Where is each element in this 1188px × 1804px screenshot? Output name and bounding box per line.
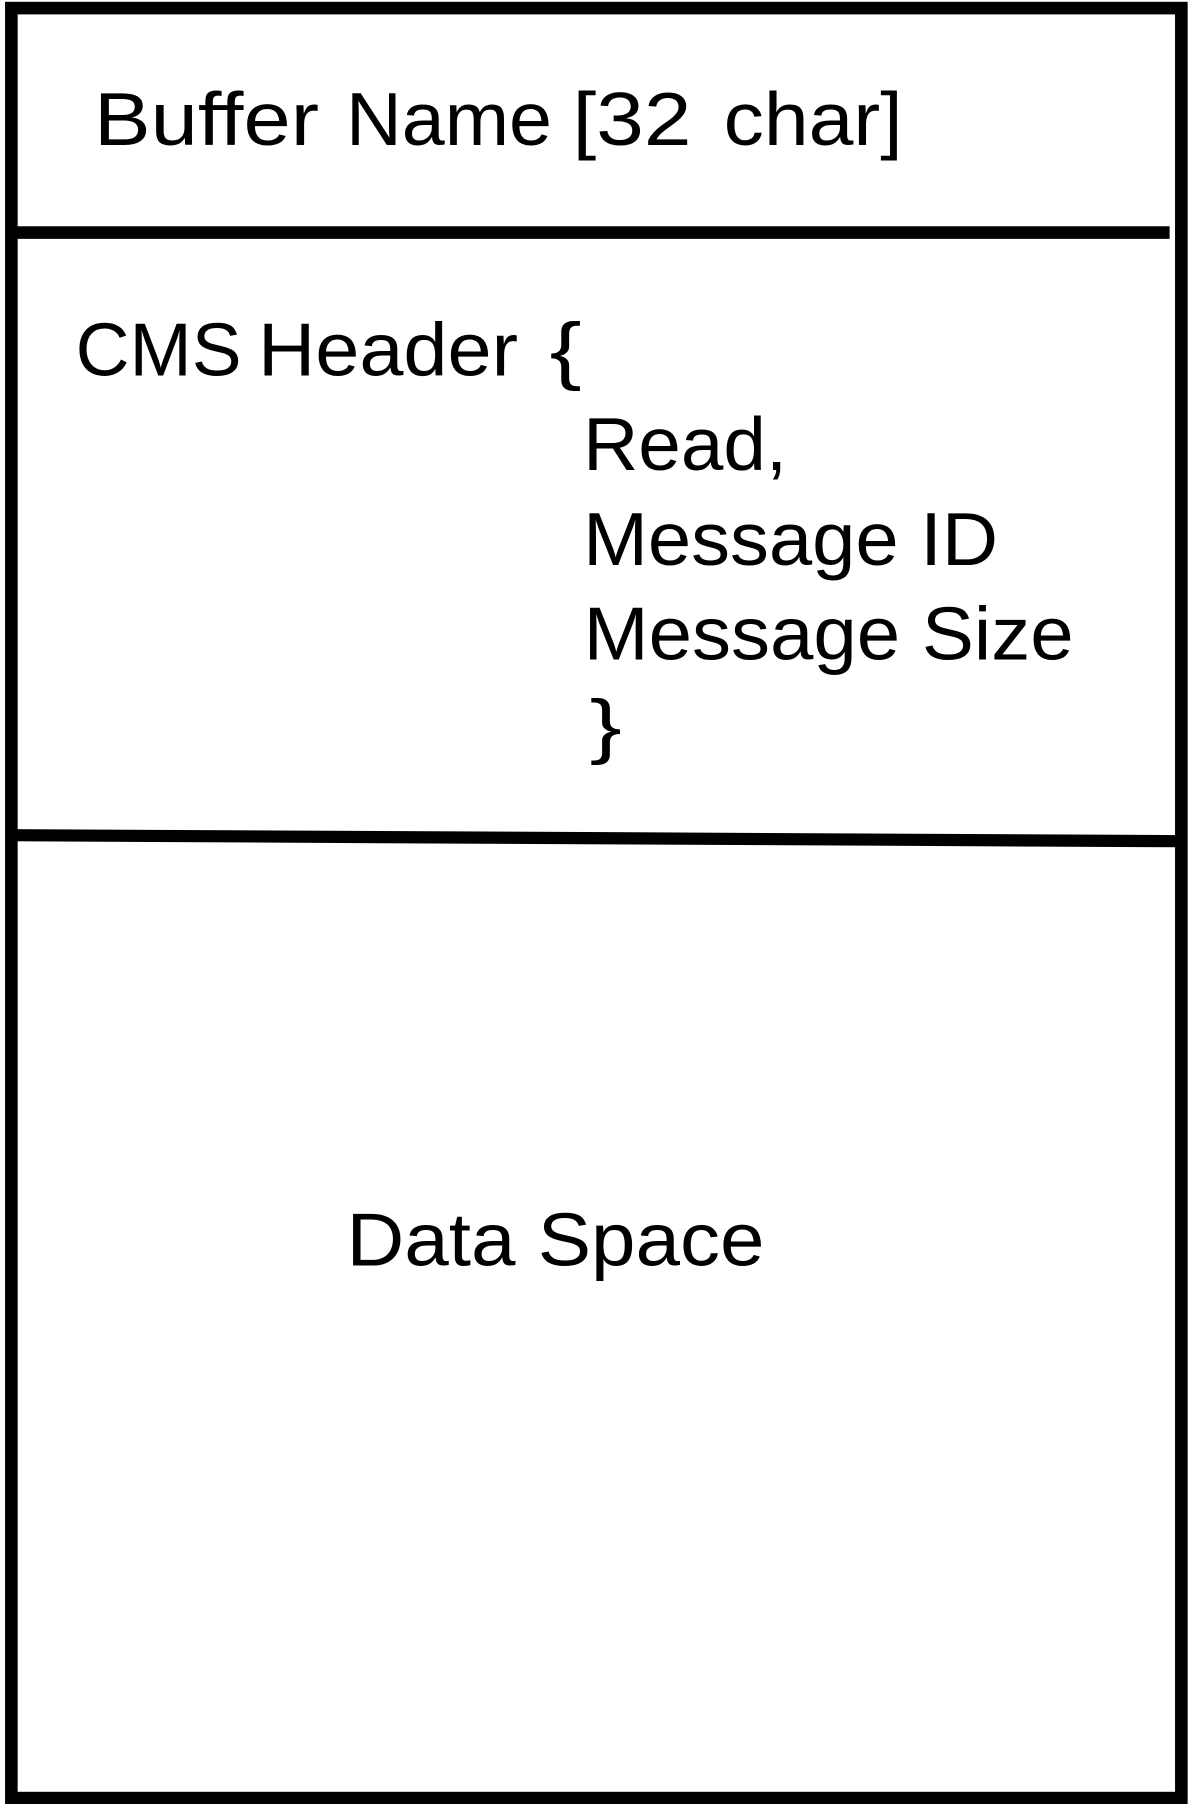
svg-text:Header: Header xyxy=(258,307,518,391)
svg-text:{: { xyxy=(550,307,582,391)
svg-text:Name: Name xyxy=(346,77,552,161)
svg-text:[32: [32 xyxy=(573,77,692,161)
svg-text:}: } xyxy=(590,686,622,766)
svg-text:Message Size: Message Size xyxy=(584,592,1074,676)
svg-text:CMS: CMS xyxy=(76,307,242,391)
svg-text:Data Space: Data Space xyxy=(347,1198,765,1282)
svg-text:Read,: Read, xyxy=(583,402,787,486)
svg-text:Message ID: Message ID xyxy=(583,497,998,581)
svg-text:Buffer: Buffer xyxy=(94,77,319,161)
svg-text:char]: char] xyxy=(724,77,903,161)
